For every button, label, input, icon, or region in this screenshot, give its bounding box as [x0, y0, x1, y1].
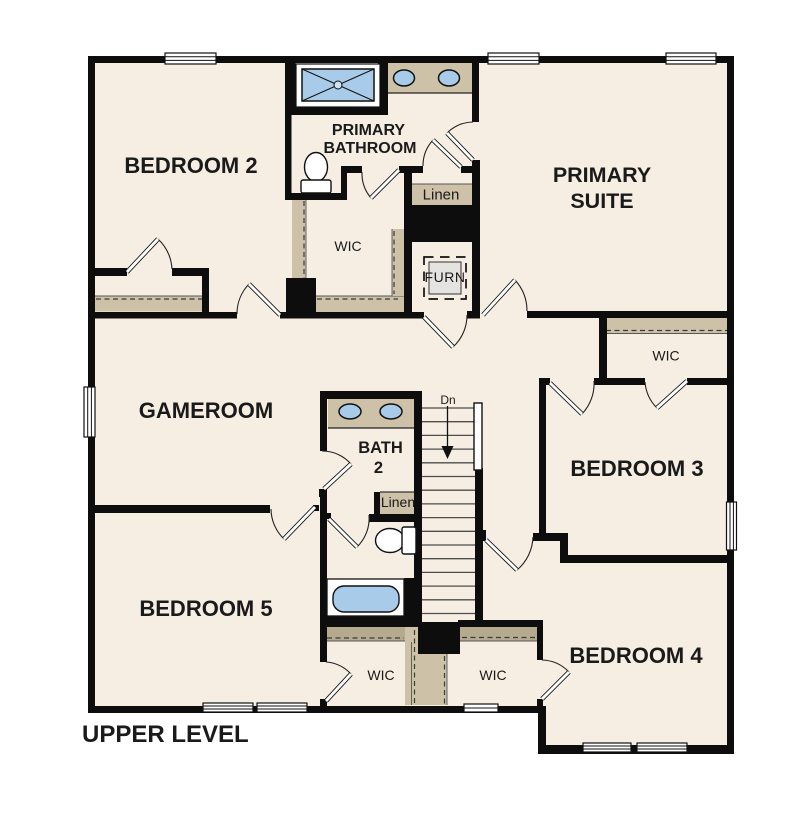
svg-text:PRIMARY: PRIMARY — [553, 163, 651, 187]
svg-text:BEDROOM 5: BEDROOM 5 — [139, 596, 272, 621]
svg-text:WIC: WIC — [334, 238, 361, 254]
svg-text:BEDROOM 3: BEDROOM 3 — [570, 456, 703, 481]
svg-text:2: 2 — [374, 459, 383, 477]
svg-text:Linen: Linen — [381, 494, 415, 510]
svg-text:Dn: Dn — [440, 393, 455, 407]
svg-text:BATHROOM: BATHROOM — [323, 140, 416, 157]
svg-text:SUITE: SUITE — [570, 189, 633, 213]
svg-text:FURN: FURN — [425, 269, 466, 285]
svg-text:BEDROOM 2: BEDROOM 2 — [124, 153, 257, 178]
svg-text:WIC: WIC — [367, 667, 394, 683]
svg-text:PRIMARY: PRIMARY — [332, 122, 406, 139]
svg-text:GAMEROOM: GAMEROOM — [139, 398, 273, 423]
svg-text:WIC: WIC — [652, 348, 679, 364]
svg-text:Linen: Linen — [423, 187, 460, 204]
svg-text:BATH: BATH — [358, 439, 403, 457]
svg-text:BEDROOM 4: BEDROOM 4 — [569, 643, 703, 668]
svg-text:UPPER LEVEL: UPPER LEVEL — [82, 721, 249, 748]
svg-text:WIC: WIC — [479, 667, 506, 683]
